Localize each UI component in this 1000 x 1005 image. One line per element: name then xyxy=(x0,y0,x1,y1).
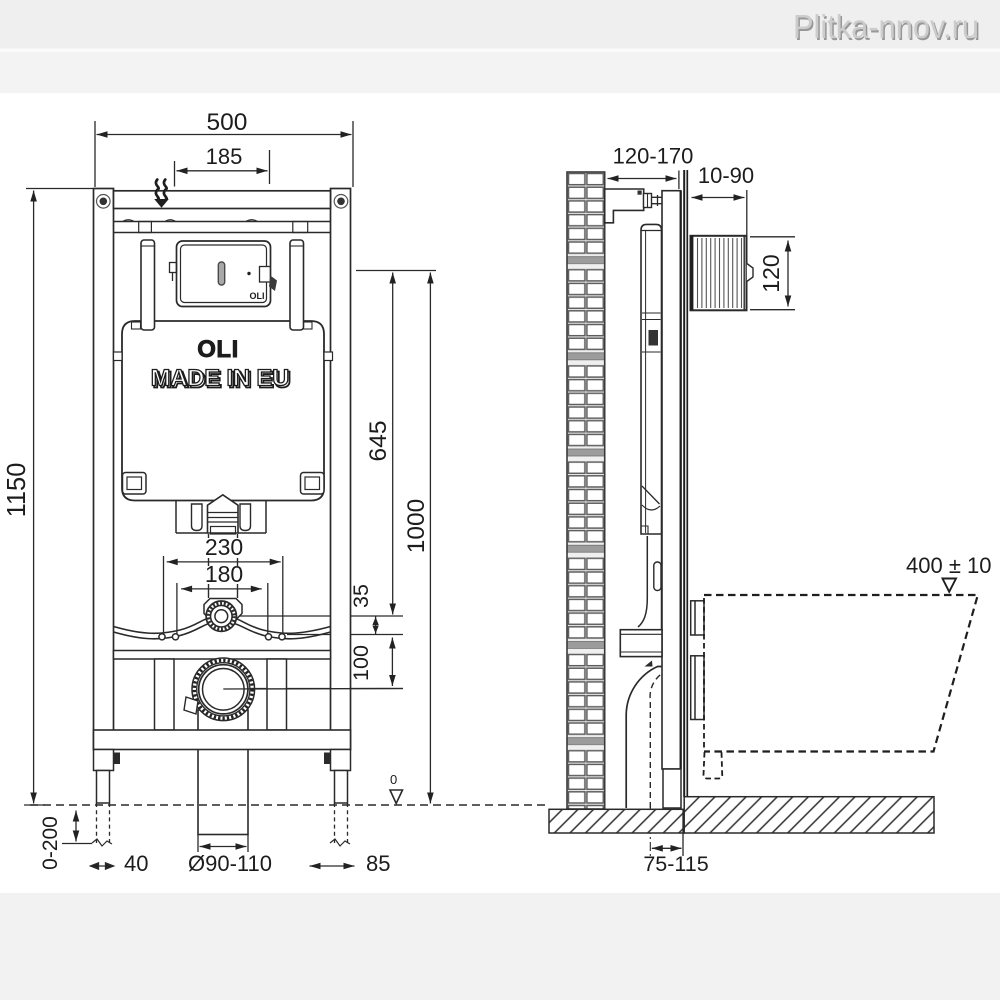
svg-text:100: 100 xyxy=(349,645,373,681)
svg-text:MADE IN EU: MADE IN EU xyxy=(151,365,289,391)
svg-text:Ø90-110: Ø90-110 xyxy=(188,851,272,876)
svg-text:0-200: 0-200 xyxy=(39,816,62,870)
svg-text:645: 645 xyxy=(365,421,392,462)
svg-text:120: 120 xyxy=(758,254,784,292)
svg-text:75-115: 75-115 xyxy=(643,852,708,876)
svg-text:500: 500 xyxy=(207,109,248,136)
svg-text:1150: 1150 xyxy=(3,463,31,518)
svg-text:230: 230 xyxy=(205,534,243,560)
svg-text:180: 180 xyxy=(205,561,243,587)
svg-text:0: 0 xyxy=(390,772,397,787)
svg-text:1000: 1000 xyxy=(403,499,430,554)
svg-text:85: 85 xyxy=(366,851,390,876)
svg-text:10-90: 10-90 xyxy=(698,163,754,188)
svg-text:35: 35 xyxy=(349,584,373,608)
svg-text:OLI: OLI xyxy=(197,336,239,363)
svg-text:185: 185 xyxy=(206,144,243,169)
svg-text:OLI: OLI xyxy=(250,291,265,301)
svg-text:400 ± 10: 400 ± 10 xyxy=(906,553,991,578)
svg-text:40: 40 xyxy=(124,851,148,876)
svg-text:120-170: 120-170 xyxy=(613,144,694,169)
svg-text:Plitka-nnov.ru: Plitka-nnov.ru xyxy=(793,8,979,45)
